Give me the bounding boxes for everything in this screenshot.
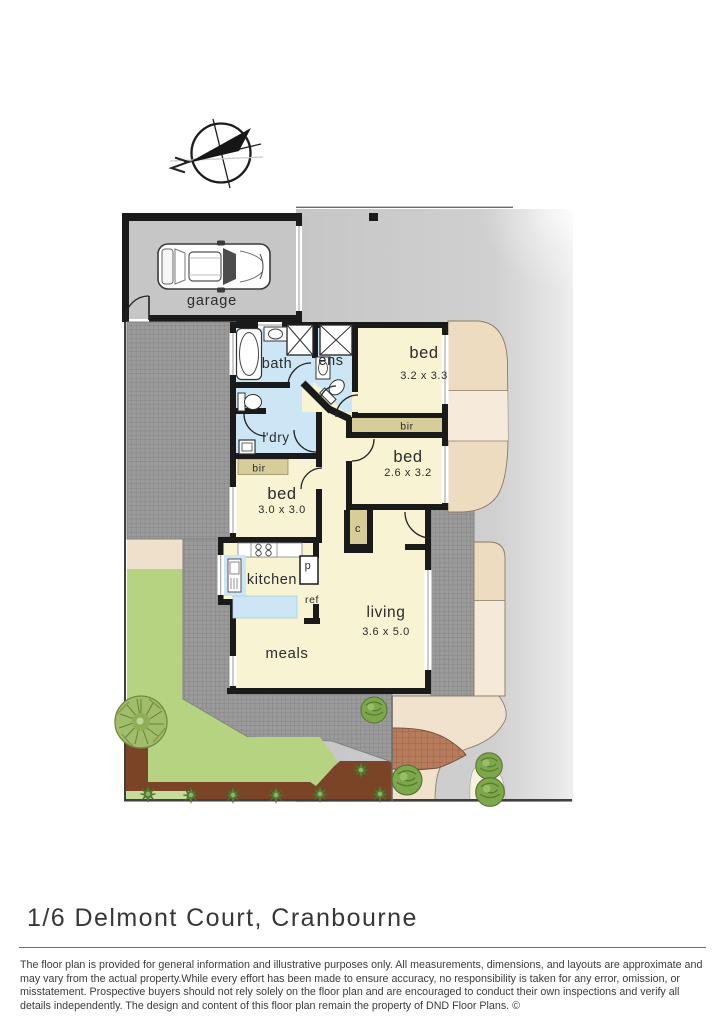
svg-text:bath: bath: [262, 356, 293, 372]
svg-text:bed: bed: [409, 344, 438, 362]
svg-text:3.6 x 5.0: 3.6 x 5.0: [362, 626, 410, 638]
svg-text:meals: meals: [265, 645, 308, 662]
svg-text:bed: bed: [393, 448, 422, 466]
svg-text:3.2 x 3.3: 3.2 x 3.3: [400, 370, 448, 382]
svg-text:bir: bir: [252, 463, 265, 475]
svg-text:l'dry: l'dry: [262, 430, 289, 445]
svg-text:bir: bir: [400, 421, 413, 433]
svg-text:living: living: [367, 604, 406, 621]
svg-text:kitchen: kitchen: [247, 572, 297, 588]
svg-text:garage: garage: [187, 293, 237, 309]
svg-text:p: p: [305, 560, 312, 572]
svg-text:ref: ref: [305, 594, 319, 606]
svg-text:bed: bed: [267, 485, 296, 503]
svg-text:c: c: [355, 523, 361, 535]
svg-text:2.6 x 3.2: 2.6 x 3.2: [384, 467, 432, 479]
svg-text:ens: ens: [318, 353, 343, 369]
svg-text:3.0 x 3.0: 3.0 x 3.0: [258, 504, 306, 516]
